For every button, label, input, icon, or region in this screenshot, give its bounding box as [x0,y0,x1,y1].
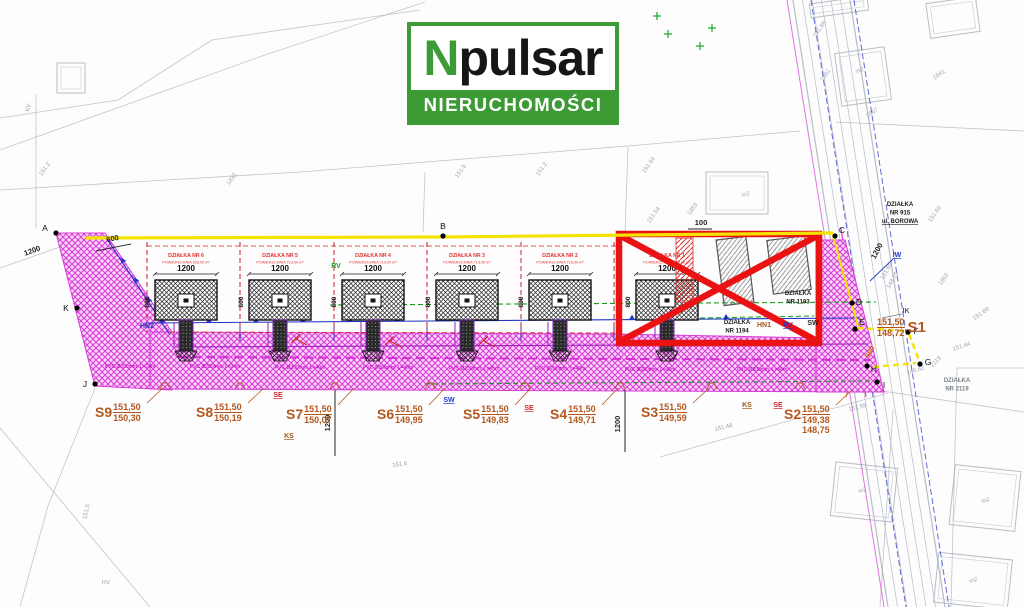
plot-width-dim: 1200 [551,264,569,273]
utility-tag-ks: KS [284,433,294,440]
driveway [660,320,674,351]
parcel-label: DZIAŁKA [785,291,812,297]
survey-leader-line [338,388,354,405]
cadastral-label: m2 [741,191,751,199]
survey-point-label-J: J [83,379,87,389]
driveway [179,320,193,351]
plot-width-dim: 1200 [177,264,195,273]
utility-tag-ik: IK [903,308,910,315]
survey-point-label-I: I [883,380,885,390]
cadastral-label: 1832 [226,172,239,187]
cadastral-label: 151.2 [535,161,549,177]
survey-point-C [832,233,837,238]
cadastral-label: 151.64 [641,156,657,175]
map-shape [184,299,189,303]
dimension-label: 1200 [23,244,42,258]
site-plan-screenshot: 151.21832151.5151.2151.64151.541853m2136… [0,0,1024,607]
utility-tag-hn2: HN2 [140,323,154,330]
cadastral-label: 151.2 [38,161,52,177]
cadastral-label: 151.54 [646,206,662,225]
map-shape [371,299,376,303]
cadastral-label: 1802 [938,272,951,287]
parcel-label: NR 1194 [725,329,749,335]
survey-leader-line [248,388,264,403]
driveway [553,320,567,351]
map-shape [665,299,670,303]
cadastral-line [0,428,150,607]
survey-point-label-K: K [63,303,69,313]
boundary-yellow-dashed [909,334,919,360]
water-arrow-icon [629,315,635,320]
logo-letter-n: N [423,26,458,90]
plot-name-label: DZIAŁKA NR 4 [355,253,391,259]
plot-width-dim: 1200 [458,264,476,273]
plot-depth-dim: 800 [625,296,632,307]
survey-point-label-C: C [839,225,845,235]
parcel-label: NR 1193 [786,300,810,306]
plot-width-dim: 1200 [271,264,289,273]
utility-tag-sw: SW [443,397,455,404]
cadastral-label: 151.48 [714,423,734,433]
survey-cross-icon [708,24,716,32]
cadastral-label: m2 [855,67,865,75]
map-shape [930,1,975,34]
pipe-label: PVC Ø200mm, L=45m [449,366,499,372]
cadastral-building [706,172,768,214]
cadastral-label: m2 [858,487,868,495]
gas-line [700,316,814,318]
cadastral-label: RV [102,580,110,586]
dimension-label: 100 [695,218,708,227]
plot-name-label: DZIAŁKA NR 2 [542,253,578,259]
cadastral-label: 151.5 [454,163,468,179]
utility-tag-se: SE [773,402,783,409]
map-shape [465,299,470,303]
cadastral-line [423,172,425,232]
pipe-label: PVC Ø200mm, L=46m [363,365,413,371]
boundary-yellow-dashed [873,363,916,367]
survey-point-label-B: B [440,221,446,231]
parcel-label: DZIAŁKA [887,202,914,208]
survey-cross-icon [664,30,672,38]
cadastral-line [836,122,1024,131]
utility-blue-dashed [854,0,949,607]
dimension-label: 1200 [613,416,622,433]
parcel-label: DZIAŁKA [724,320,751,326]
survey-point-label-F: F [913,326,918,336]
cadastral-building [926,0,980,38]
survey-point-label-A: A [42,223,48,233]
cadastral-line [625,147,628,232]
map-shape [61,67,81,89]
utility-tag-iw: IW [893,252,902,259]
dimension-label: 600 [105,233,119,244]
driveway [366,320,380,351]
cadastral-line [0,131,800,190]
cadastral-label: 1853 [687,202,700,217]
plot-name-label: DZIAŁKA NR 3 [449,253,485,259]
map-shape [710,176,764,210]
plot-depth-dim: 800 [425,296,432,307]
cadastral-label: 151.88 [972,306,991,322]
plot-name-label: DZIAŁKA NR 5 [262,253,298,259]
cadastral-label: m2 [969,577,979,585]
cadastral-label: 2119 [930,355,944,369]
pipe-label: PVC Ø200mm, L=34m [190,364,240,370]
utility-tag-rv: RV [783,322,793,329]
survey-cross-icon [653,12,661,20]
cadastral-label: KV [25,103,33,112]
parcel-label: DZIAŁKA [944,378,971,384]
utility-tag-rv: RV [331,263,341,270]
survey-point-B [440,233,445,238]
dimension-label: 1200 [323,415,332,432]
plot-width-dim: 1200 [364,264,382,273]
survey-point-D [849,300,854,305]
cadastral-line [212,10,420,40]
plot-depth-dim: 800 [238,296,245,307]
cadastral-label: 151.66 [927,205,943,224]
cadastral-line [0,2,425,150]
pipe-label: PVC Ø200mm, L=49m [535,366,585,372]
utility-tag-se: SE [273,392,283,399]
cadastral-label: 148.62 [906,365,926,377]
cadastral-label: 151.44 [952,341,972,353]
cadastral-label: 1841 [932,69,947,82]
survey-point-G [917,361,922,366]
cadastral-line [875,390,1024,412]
cadastral-label: 1361 [820,68,833,83]
utility-tag-hn1: HN1 [757,322,771,329]
cadastral-label: 151.6 [392,461,408,469]
agency-logo: Npulsar NIERUCHOMOŚCI [407,22,619,125]
survey-point-E [852,326,857,331]
plot-name-label: DZIAŁKA NR 6 [168,253,204,259]
pipe-label: PVC Ø200mm, L=24m [105,364,155,370]
cadastral-label: m2 [981,497,991,505]
survey-point-H [864,363,869,368]
pipe-label: PVC Ø200mm, L=40m [275,365,325,371]
cadastral-building [57,63,85,93]
agency-logo-wordmark: Npulsar [411,26,615,90]
water-arrow-icon [723,314,729,319]
plot-depth-dim: 800 [144,296,151,307]
survey-point-I [874,379,879,384]
pipe-label: PVC Ø200mm, L=48m [737,367,787,373]
cadastral-line [951,368,957,607]
road-edge-line [850,0,945,607]
cadastral-line [20,388,95,607]
map-shape [706,172,768,214]
pipe-label: PVC Ø200mm, L=42m [625,367,675,373]
survey-point-label-E: E [859,317,865,327]
cadastral-building [809,0,868,18]
plot-depth-dim: 800 [518,296,525,307]
dimension-label: 1200 [869,241,885,260]
survey-point-F [905,329,910,334]
map-shape [278,299,283,303]
plot-depth-dim: 800 [331,296,338,307]
utility-tag-ks: KS [742,402,752,409]
survey-point-label-D: D [856,297,862,307]
parcel-label: ul. BOROWA [882,219,919,225]
driveway [460,320,474,351]
utility-tag-sw: SW [807,320,819,327]
survey-point-K [74,305,79,310]
survey-point-label-G: G [925,357,932,367]
parcel-label: NR 2119 [945,387,969,393]
agency-logo-subtitle: NIERUCHOMOŚCI [411,90,615,121]
survey-point-J [92,381,97,386]
survey-leader-line [147,388,163,403]
driveway [273,320,287,351]
survey-point-label-H: H [871,364,877,374]
logo-wordmark-rest: pulsar [459,26,603,90]
survey-point-A [53,230,58,235]
utility-tag-se: SE [524,405,534,412]
cadastral-label: 151.5 [83,503,92,520]
survey-cross-icon [696,42,704,50]
parcel-label: NR 915 [890,211,911,217]
map-shape [558,299,563,303]
map-shape [809,0,868,18]
